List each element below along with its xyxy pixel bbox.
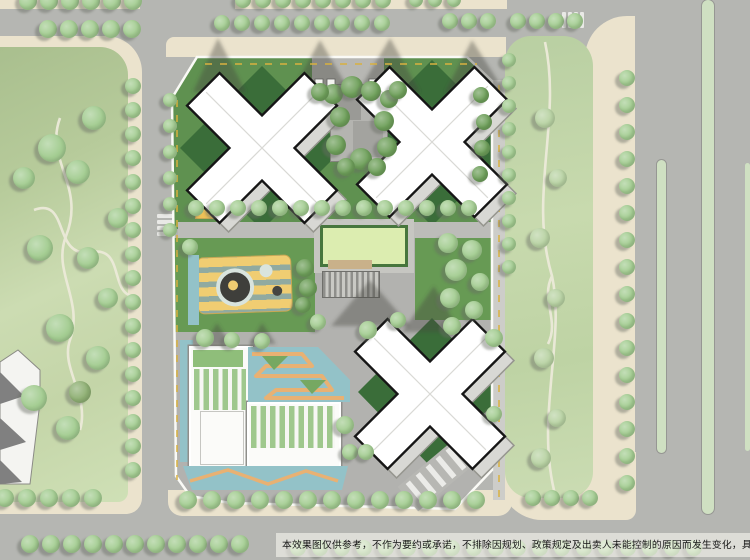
site-plan-canvas: 本效果图仅供参考，不作为要约或承诺，不排除因规划、政策规定及出卖人未能控制的原因… (0, 0, 750, 560)
residential-tower-3 (345, 309, 515, 479)
sidewalk-strip-site-north (166, 37, 506, 57)
roof-garden-stripes-b (251, 406, 335, 448)
residential-tower-2 (347, 57, 517, 227)
greenspace-mid-east (415, 238, 492, 320)
crosswalk-north-road (562, 12, 586, 30)
sun-deck (328, 260, 372, 269)
water-strip-playground (188, 255, 199, 325)
roof-garden-solid (193, 350, 243, 367)
disclaimer-text: 本效果图仅供参考，不作为要约或承诺，不排除因规划、政策规定及出卖人未能控制的原因… (282, 537, 750, 553)
roof-garden-stripes-a (194, 369, 246, 410)
roof-plain-block (201, 412, 243, 464)
median-strip-inner (657, 160, 666, 453)
sidewalk-strip-top-left (0, 0, 140, 9)
park-west-lawn (0, 47, 128, 502)
median-strip-edge (745, 163, 750, 451)
pergola-structure (322, 271, 380, 298)
residential-tower-1 (177, 63, 347, 233)
greenbelt-east (505, 36, 593, 498)
playground (197, 255, 292, 313)
median-strip-main (702, 0, 714, 514)
sidewalk-strip-top-center (235, 0, 507, 9)
